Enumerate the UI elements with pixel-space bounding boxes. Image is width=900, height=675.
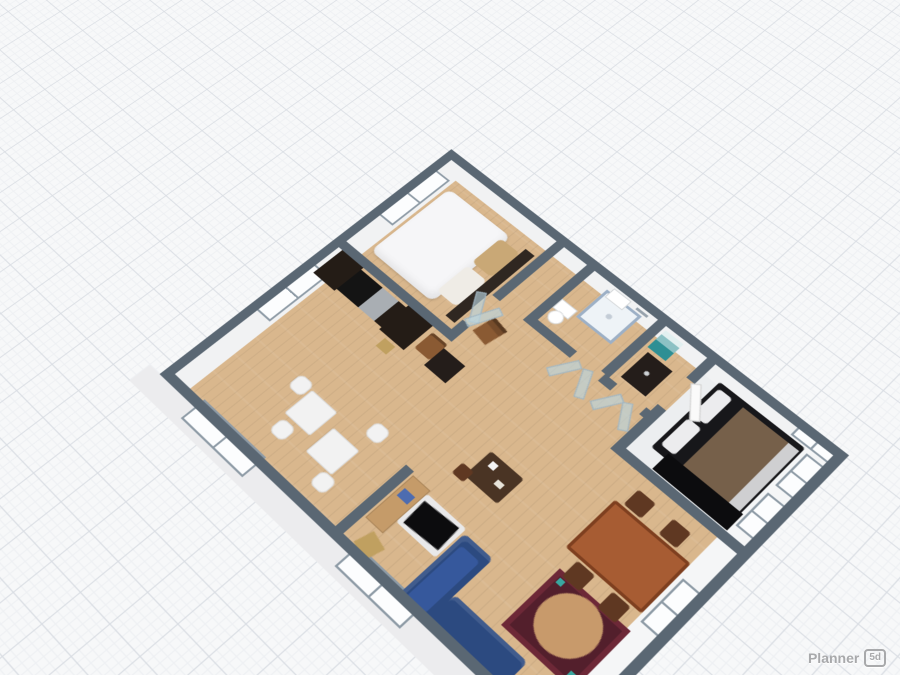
ground-grid xyxy=(0,0,900,675)
planner5d-watermark: Planner 5d xyxy=(808,649,886,667)
bedroom-2-door-leaf[interactable] xyxy=(689,383,702,422)
planner5d-house-badge-icon: 5d xyxy=(864,649,886,667)
floor-plan xyxy=(160,149,850,675)
scene-stage xyxy=(0,0,900,675)
watermark-brand-text: Planner xyxy=(808,650,859,666)
planner-3d-viewport[interactable]: Planner 5d xyxy=(0,0,900,675)
